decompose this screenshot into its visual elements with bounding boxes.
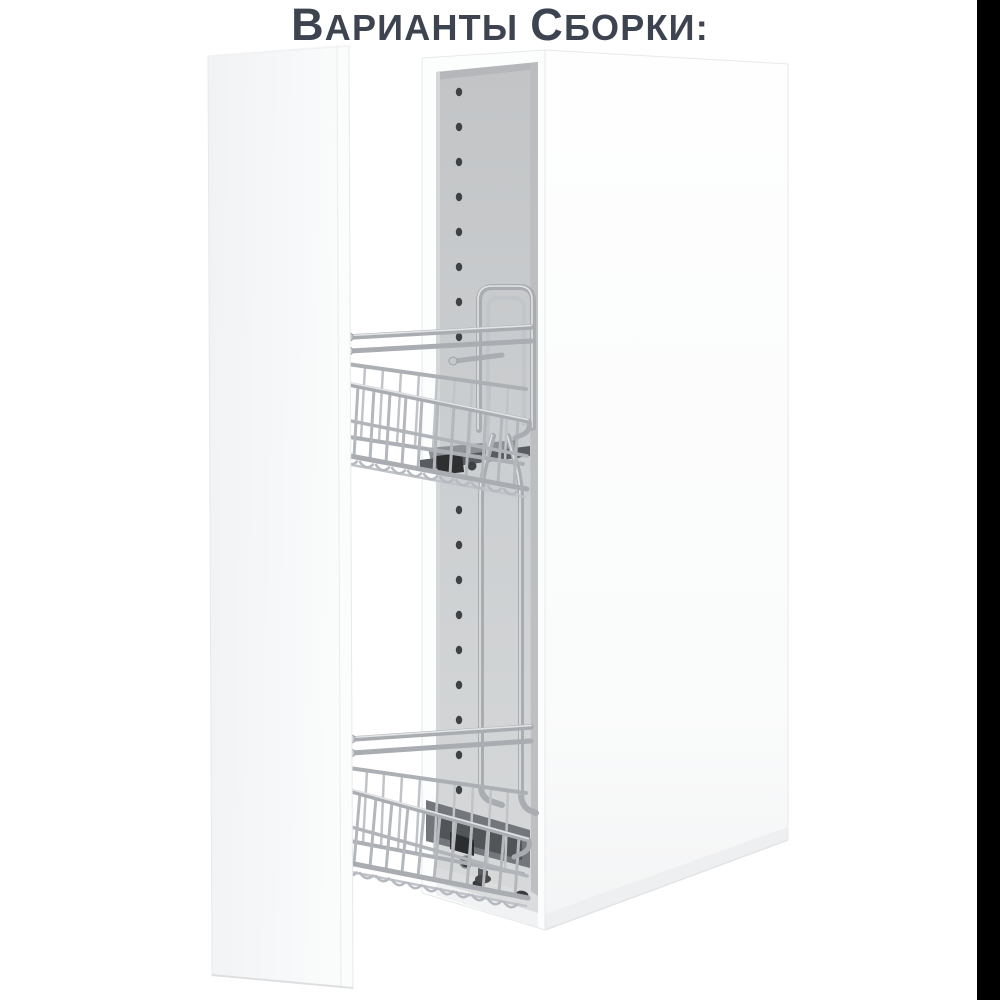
frame-bar-cap bbox=[449, 357, 457, 365]
door-face bbox=[208, 45, 341, 986]
interior-right-shade bbox=[530, 62, 538, 896]
right-edge-black-strip bbox=[977, 0, 1000, 1000]
product-screenshot: ВАРИАНТЫСБОРКИ: bbox=[0, 0, 1000, 1000]
upper-slide-roller bbox=[468, 462, 477, 471]
door-panel bbox=[208, 45, 353, 988]
cabinet-side-panel bbox=[545, 50, 788, 930]
cabinet-carcass bbox=[422, 50, 788, 930]
product-image bbox=[0, 0, 1000, 1000]
